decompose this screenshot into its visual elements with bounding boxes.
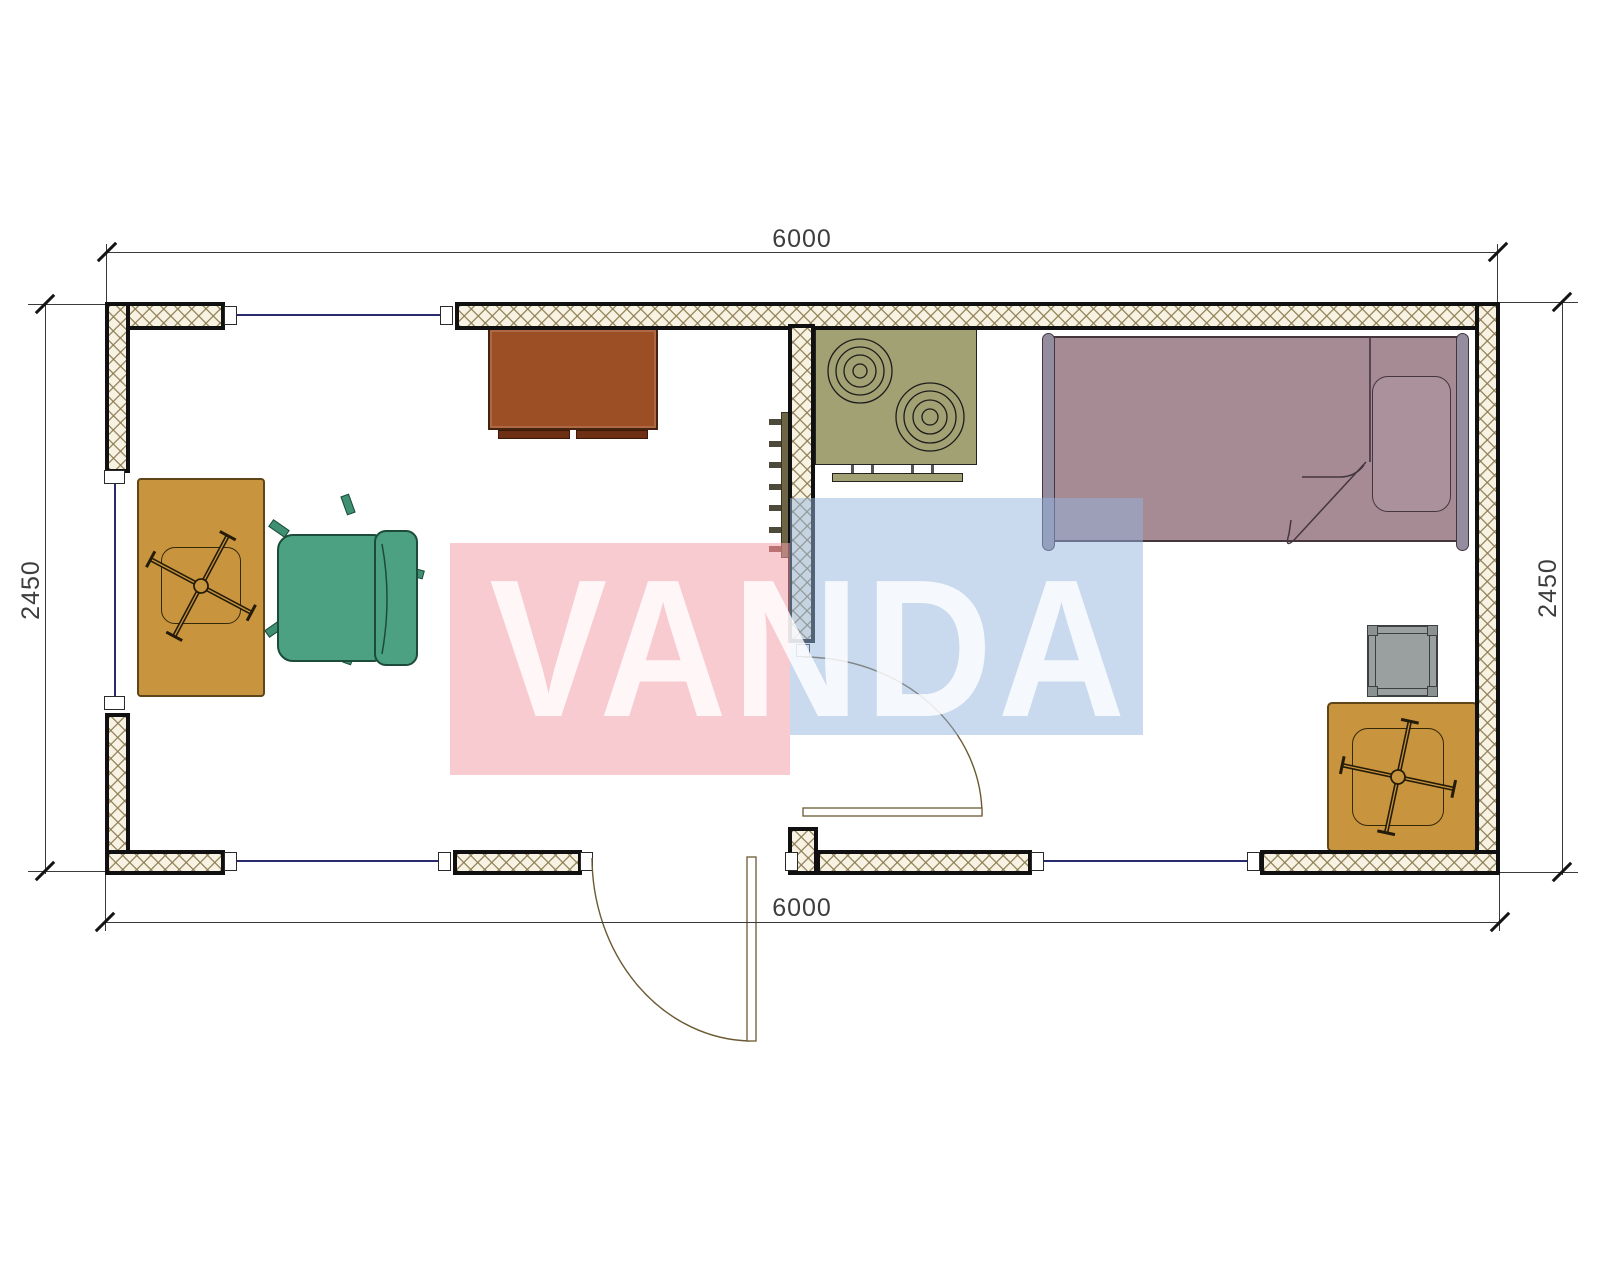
cooktop-stove bbox=[815, 328, 977, 465]
window-frame bbox=[438, 852, 451, 871]
desk-right-chair-seat-outline bbox=[1352, 728, 1444, 826]
office-chair-backrest bbox=[374, 530, 418, 666]
window-glazing-bottom-2 bbox=[1044, 860, 1247, 862]
stool-leg bbox=[1367, 625, 1378, 636]
exterior-door-swing-arc bbox=[592, 858, 750, 1041]
wall-left-upper bbox=[105, 302, 130, 473]
stool-leg bbox=[1427, 625, 1438, 636]
wall-bottom-4 bbox=[1260, 850, 1500, 875]
stool-leg bbox=[1367, 686, 1378, 697]
window-frame bbox=[224, 306, 237, 325]
window-frame bbox=[1247, 852, 1260, 871]
window-glazing-left bbox=[114, 484, 116, 696]
dim-line-bottom bbox=[105, 922, 1500, 923]
kitchen-shelf bbox=[832, 473, 963, 482]
bed-pillow bbox=[1372, 376, 1451, 512]
bed-sheet-line bbox=[1369, 338, 1371, 462]
dim-label-bottom: 6000 bbox=[742, 895, 862, 921]
wall-bottom-2 bbox=[453, 850, 582, 875]
wall-top-main bbox=[455, 302, 1500, 330]
exterior-door-leaf bbox=[747, 857, 756, 1041]
floor-plan-canvas: 6000 6000 2450 2450 VANDA bbox=[0, 0, 1600, 1280]
window-glazing-bottom-1 bbox=[235, 860, 440, 862]
dim-label-left: 2450 bbox=[18, 530, 44, 650]
stool-leg bbox=[1427, 686, 1438, 697]
tv-cabinet-foot bbox=[498, 430, 570, 439]
wall-right bbox=[1475, 302, 1500, 875]
office-chair-seat bbox=[277, 534, 389, 662]
dim-line-left bbox=[45, 302, 46, 874]
tv-cabinet bbox=[488, 328, 658, 430]
bed-headboard bbox=[1456, 333, 1469, 551]
window-frame bbox=[1031, 852, 1044, 871]
dim-line-right bbox=[1562, 300, 1563, 875]
wall-bottom-3 bbox=[816, 850, 1032, 875]
dim-label-right: 2450 bbox=[1535, 528, 1561, 648]
dim-ext bbox=[28, 871, 105, 872]
dim-ext bbox=[28, 304, 105, 305]
watermark-text: VANDA bbox=[482, 552, 1139, 744]
door-frame-exterior-left bbox=[580, 852, 593, 871]
dim-ext bbox=[1500, 302, 1578, 303]
stool-inner-frame bbox=[1375, 633, 1430, 689]
window-glazing-top bbox=[237, 314, 440, 316]
tv-cabinet-foot bbox=[576, 430, 648, 439]
window-frame bbox=[104, 470, 125, 484]
window-frame bbox=[104, 696, 125, 710]
interior-door-leaf bbox=[803, 808, 982, 816]
dim-ext bbox=[1500, 872, 1578, 873]
dim-label-top: 6000 bbox=[742, 226, 862, 252]
window-frame bbox=[440, 306, 453, 325]
wall-bottom-1 bbox=[105, 850, 225, 875]
office-chair-foot bbox=[340, 494, 355, 516]
window-frame bbox=[224, 852, 237, 871]
door-frame-exterior-right bbox=[785, 852, 798, 871]
desk-left-chair-seat-outline bbox=[161, 547, 241, 624]
